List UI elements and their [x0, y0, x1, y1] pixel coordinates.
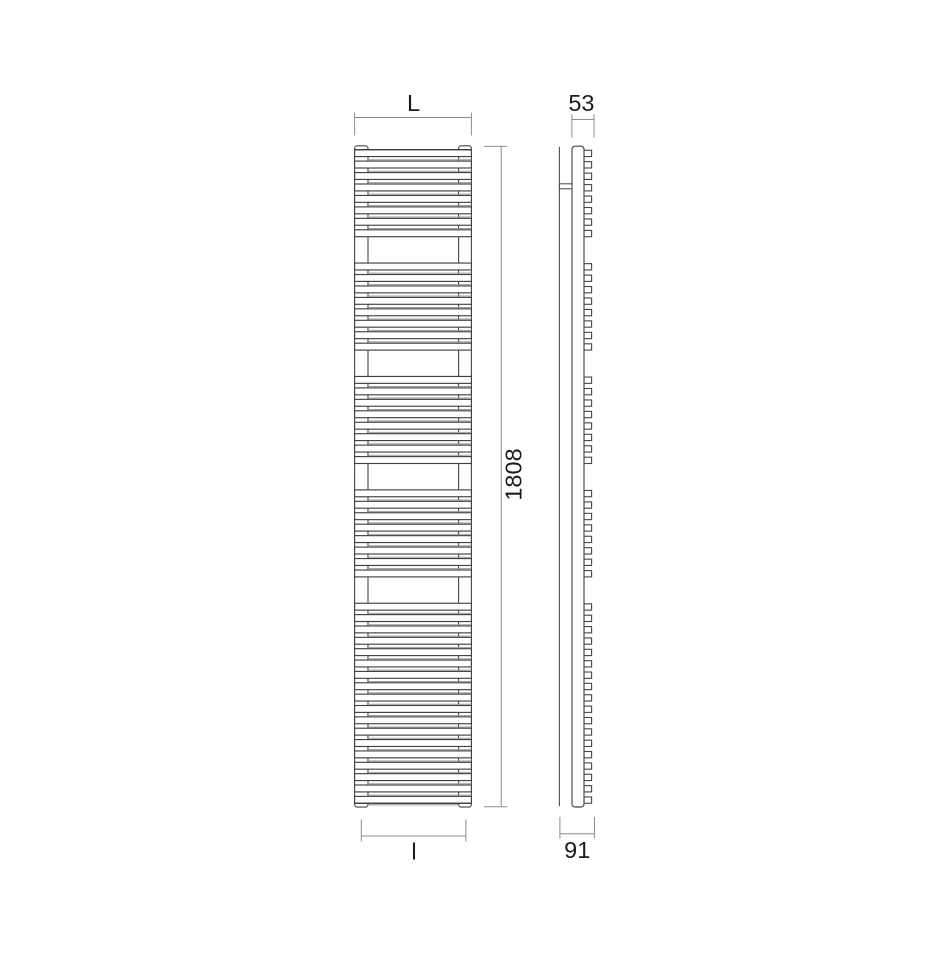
- svg-text:L: L: [407, 90, 420, 116]
- svg-text:91: 91: [564, 837, 590, 863]
- svg-text:53: 53: [568, 90, 594, 116]
- svg-text:1808: 1808: [501, 448, 527, 500]
- svg-text:l: l: [411, 839, 416, 865]
